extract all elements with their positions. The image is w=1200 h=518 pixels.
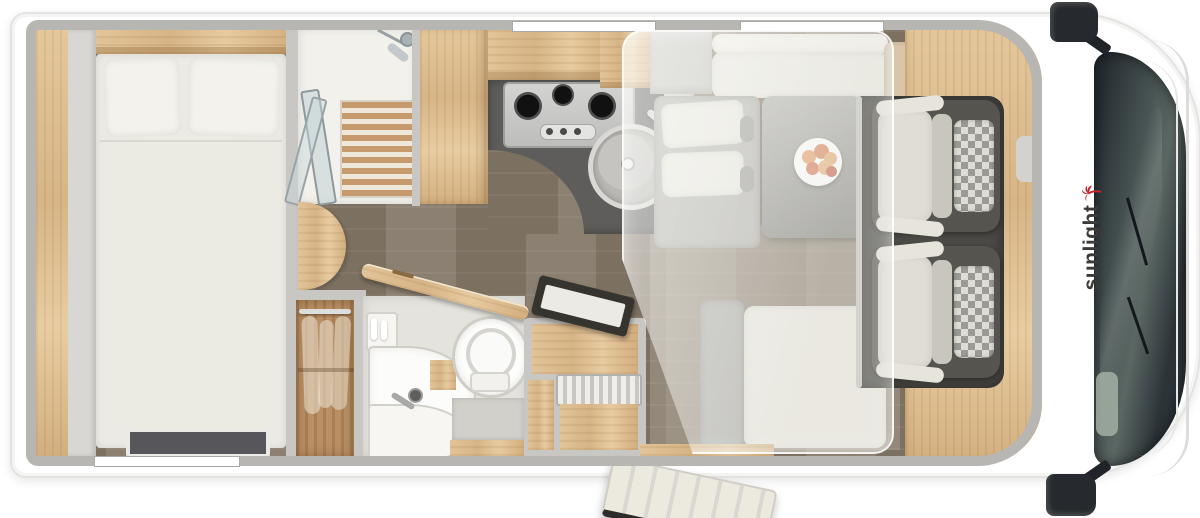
motorhome-floorplan: sunlight: [0, 0, 1200, 518]
dashboard-visible-strip: [1096, 372, 1118, 436]
side-mirror-top: [1050, 2, 1098, 42]
brand-logo: sunlight: [1077, 140, 1107, 330]
palm-tree-icon: [1081, 180, 1103, 202]
hood-trim-line-2: [1138, 60, 1178, 456]
rear-window: [94, 456, 240, 467]
brand-logo-text: sunlight: [1080, 205, 1104, 291]
side-mirror-bottom: [1046, 474, 1096, 516]
